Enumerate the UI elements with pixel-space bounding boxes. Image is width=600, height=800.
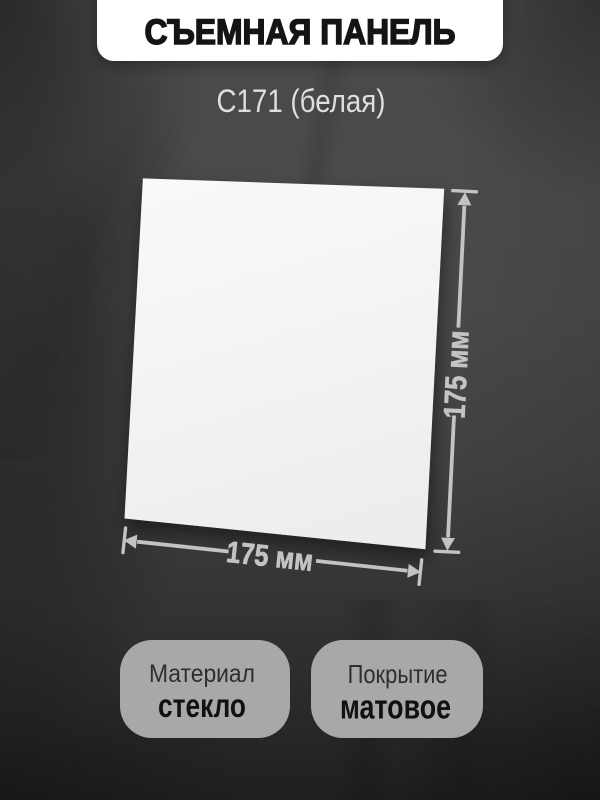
- svg-text:Покрытие: Покрытие: [348, 659, 448, 689]
- svg-text:СЪЕМНАЯ ПАНЕЛЬ: СЪЕМНАЯ ПАНЕЛЬ: [145, 13, 456, 52]
- svg-text:матовое: матовое: [340, 689, 451, 727]
- svg-text:стекло: стекло: [158, 687, 246, 724]
- svg-text:175 мм: 175 мм: [438, 330, 475, 420]
- svg-text:175 мм: 175 мм: [225, 536, 315, 578]
- svg-text:Материал: Материал: [149, 660, 255, 688]
- svg-text:С171 (белая): С171 (белая): [217, 83, 386, 119]
